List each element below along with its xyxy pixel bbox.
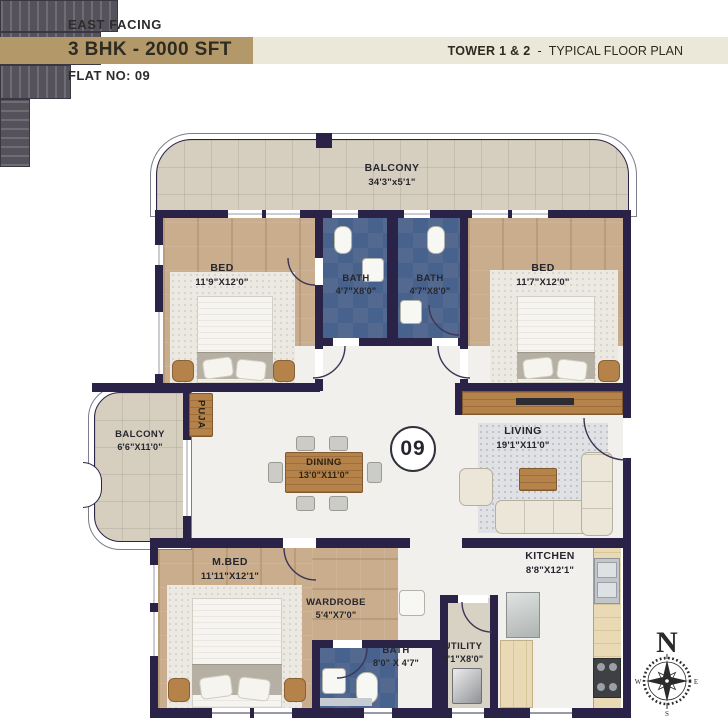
window — [452, 708, 484, 718]
pillow — [556, 358, 588, 382]
window — [150, 612, 158, 656]
tv-screen — [516, 398, 574, 405]
sink-bowl — [597, 562, 617, 578]
toilet — [334, 226, 352, 254]
door-gap — [283, 538, 316, 548]
compass-rose: N E S W — [635, 626, 698, 718]
tower-plan-line: TOWER 1 & 2 - TYPICAL FLOOR PLAN — [253, 37, 683, 64]
compass-inner-ring — [648, 662, 686, 700]
window — [155, 245, 163, 265]
room-balcony-top-floor — [156, 139, 629, 215]
pillow — [202, 356, 234, 380]
flat-no-label: FLAT NO: 09 — [68, 68, 150, 83]
sink — [322, 668, 346, 694]
window — [512, 210, 548, 218]
compass-star-diagonal — [659, 673, 676, 690]
wall-segment — [462, 538, 631, 548]
washing-machine — [452, 668, 482, 704]
dining-chair — [296, 496, 315, 511]
wall-segment — [455, 383, 462, 415]
unit-number-badge: 09 — [390, 426, 436, 472]
wall-segment — [623, 210, 631, 718]
door-gap — [432, 338, 458, 346]
dining-chair — [268, 462, 283, 483]
pillow — [235, 358, 267, 381]
sliding-door — [183, 440, 191, 516]
wardrobe-unit — [0, 65, 71, 99]
refrigerator — [506, 592, 540, 638]
window — [530, 708, 572, 718]
sofa-chaise — [581, 452, 613, 536]
compass-hub — [665, 679, 669, 683]
compass-north-label: N — [656, 626, 678, 659]
window — [212, 708, 250, 718]
wall-segment — [316, 538, 410, 548]
wall-segment — [460, 383, 631, 391]
dining-chair — [367, 462, 382, 483]
wall-segment — [432, 648, 440, 708]
wall-segment — [155, 210, 631, 218]
nightstand — [273, 360, 295, 382]
dining-chair — [329, 496, 348, 511]
burner — [609, 683, 617, 691]
shower-tray — [320, 698, 372, 706]
armchair — [459, 468, 493, 506]
wall-segment — [440, 595, 448, 708]
kitchen-counter — [500, 640, 533, 708]
sink-bowl — [597, 582, 617, 598]
room-wardrobe-floor — [312, 548, 398, 650]
door-gap — [333, 640, 362, 648]
burner — [609, 663, 617, 671]
wash-basin — [399, 590, 425, 616]
wall-segment — [150, 538, 283, 548]
door-gap — [460, 349, 468, 379]
wall-segment — [312, 640, 440, 648]
coffee-table — [519, 468, 557, 491]
door-gap — [315, 349, 323, 379]
burner — [597, 663, 605, 671]
sink — [400, 300, 422, 324]
nightstand — [172, 360, 194, 382]
window — [254, 708, 292, 718]
window — [472, 210, 508, 218]
wall-segment — [387, 218, 398, 338]
door-gap — [315, 258, 323, 285]
door-gap — [458, 595, 488, 603]
plan-type-label: TYPICAL FLOOR PLAN — [549, 44, 683, 58]
room-puja: PUJA — [189, 393, 213, 437]
compass-star — [646, 660, 688, 702]
unit-type-label: 3 BHK - 2000 SFT — [68, 39, 232, 61]
wardrobe-unit — [0, 99, 30, 167]
toilet — [427, 226, 445, 254]
balcony-notch-pier — [316, 133, 332, 148]
entrance-door-gap — [623, 418, 631, 458]
kitchen-passage-opening — [410, 538, 462, 548]
window — [228, 210, 262, 218]
nightstand — [284, 678, 306, 702]
wall-segment — [312, 648, 320, 708]
nightstand — [598, 360, 620, 382]
puja-label: PUJA — [196, 400, 207, 429]
window — [332, 210, 358, 218]
compass-west-label: W — [635, 678, 642, 686]
dining-chair — [329, 436, 348, 451]
room-bath1-floor — [323, 218, 387, 346]
wall-segment — [92, 383, 320, 392]
dining-table — [285, 452, 363, 493]
nightstand — [168, 678, 190, 702]
sink — [362, 258, 384, 282]
separator: - — [538, 44, 542, 58]
wall-segment — [490, 595, 498, 708]
wall-segment — [440, 595, 458, 603]
window — [266, 210, 300, 218]
pillow — [237, 676, 271, 702]
window — [155, 312, 163, 374]
door-gap — [333, 338, 359, 346]
floor-plan-page: { "header": { "facing": "EAST FACING", "… — [0, 0, 728, 728]
pillow — [199, 674, 234, 700]
window — [150, 565, 158, 603]
compass-south-label: S — [665, 710, 669, 718]
facing-label: EAST FACING — [68, 17, 162, 32]
room-balcony-left-floor — [94, 392, 186, 542]
window — [364, 708, 392, 718]
compass-ring — [644, 658, 690, 704]
window — [404, 210, 430, 218]
dining-chair — [296, 436, 315, 451]
tower-label: TOWER 1 & 2 — [448, 44, 531, 58]
pillow — [522, 356, 554, 380]
compass-east-label: E — [694, 678, 698, 686]
burner — [597, 683, 605, 691]
